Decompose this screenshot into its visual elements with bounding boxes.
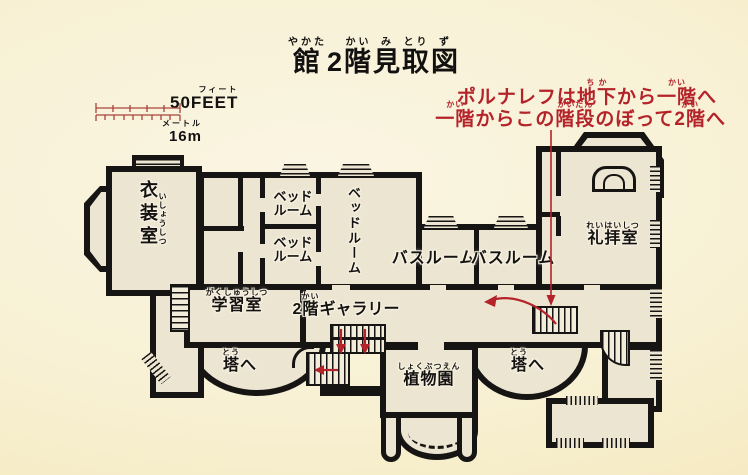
title-text: 館 [293, 48, 322, 77]
annotation-text: のぼって [595, 109, 674, 130]
window [650, 166, 660, 192]
wall-segment [320, 386, 386, 396]
room-label-tower-left: とう塔 へ [222, 348, 256, 375]
room-label-text: バスルーム [471, 250, 556, 268]
wall-segment [556, 150, 561, 196]
room-label-text: 2 [293, 301, 302, 319]
door-gap [498, 285, 514, 291]
room-label-garden: しょくぶつえん 植物園 [398, 362, 461, 389]
window [424, 216, 458, 228]
door-gap [430, 285, 446, 291]
room-label-text: へ [528, 357, 544, 375]
wall-segment [538, 212, 560, 217]
wall-segment [556, 216, 561, 236]
room-label-bedroom-small-top: ベッド ルーム [273, 190, 312, 218]
furigana: ち か [586, 78, 607, 87]
title-text: 2 [327, 48, 344, 77]
window [494, 216, 528, 228]
stair-left [170, 284, 190, 332]
window [338, 164, 374, 176]
wall-segment [260, 258, 265, 288]
title-text: 見 [373, 48, 402, 77]
wall-segment [316, 206, 321, 252]
window [650, 288, 662, 318]
door-gap [332, 285, 350, 291]
room-label-furigana: れいはいしつ [586, 221, 640, 230]
furigana: とう [510, 348, 528, 357]
title-text: 階 [344, 48, 373, 77]
window [280, 164, 310, 176]
wall-segment [260, 176, 265, 198]
scale-meters-text: 16m [169, 128, 202, 146]
room-label-text: 塔 [223, 357, 239, 375]
furigana: かい [668, 78, 686, 87]
door-gap [584, 285, 600, 291]
room-label-furigana: しょくぶつえん [398, 362, 461, 371]
scale-feet-text: 50FEET [170, 94, 238, 112]
wall-segment [264, 224, 320, 229]
room-label-text: へ [240, 357, 256, 375]
annotation-text: からこの [475, 109, 555, 130]
page-title: やかた館 2 かい階 み見 とり取 ず図 [0, 37, 748, 77]
wall-segment [238, 252, 243, 288]
wall-segment [316, 266, 321, 288]
room-label-text: ベッドルーム [346, 186, 361, 276]
room-label-bedroom-large: ベッドルーム [346, 186, 361, 276]
wall-segment [238, 178, 243, 226]
annotation-line-2: かい一階 からこの かいだん階段 のぼって かい2階 へ [435, 100, 726, 130]
furigana: かい [446, 100, 464, 109]
window [650, 220, 660, 248]
room-label-text: 衣装室 [138, 180, 158, 249]
annotation-text: へ [706, 109, 726, 130]
stair-rail [332, 337, 384, 340]
door-gap [418, 342, 444, 350]
room-label-text: 学習室 [211, 297, 262, 315]
stair-main-landing [532, 306, 578, 334]
chapel-window-seat [592, 166, 636, 192]
floor-plan-page: 衣装室 いしょうしつ ベッド ルーム ベッド ルーム ベッドルーム バスルーム … [0, 0, 748, 475]
room-label-bedroom-small-bottom: ベッド ルーム [273, 236, 312, 264]
room-label-text: ベッド [273, 190, 312, 204]
wall-segment [316, 176, 321, 194]
room-label-study: がくしゅうしつ 学習室 [206, 288, 269, 315]
room-label-text: 塔 [511, 357, 527, 375]
furigana: とう [222, 348, 240, 357]
title-text: 取 [402, 48, 431, 77]
annotation-text: 一階 [435, 109, 475, 130]
window [566, 396, 598, 405]
window [556, 438, 584, 448]
room-label-text: 植物園 [403, 371, 454, 389]
scale-meters-furigana: メートル [162, 119, 202, 128]
room-label-text: ルーム [274, 204, 313, 218]
room-label-bathroom-right: バスルーム [471, 250, 556, 268]
room-label-gallery: 2 かい階 ギャラリー [293, 292, 400, 319]
room-label-tower-right: とう塔 へ [510, 348, 544, 375]
room-label-text: ベッド [273, 236, 312, 250]
furigana: かい [681, 100, 699, 109]
annotation-text: 階段 [555, 109, 595, 130]
furigana: かいだん [557, 100, 593, 109]
scale-meters-label: メートル 16m [162, 119, 202, 146]
wall-segment [202, 226, 244, 231]
annotation-text: 2階 [674, 109, 706, 130]
room-label-text: 階 [302, 301, 318, 319]
room-label-chapel: れいはいしつ 礼拝室 [586, 221, 640, 248]
room-label-bathroom-left: バスルーム [392, 250, 477, 268]
room-label-text: バスルーム [392, 250, 477, 268]
scale-feet-label: フィート 50FEET [170, 85, 238, 112]
room-label-text: ギャラリー [319, 301, 399, 319]
title-text: 図 [431, 48, 460, 77]
room-label-furigana: がくしゅうしつ [206, 288, 269, 297]
window [602, 438, 630, 448]
room-label-wardrobe: 衣装室 いしょうしつ [138, 180, 167, 249]
window [650, 350, 662, 380]
room-label-furigana: いしょうしつ [158, 192, 167, 249]
furigana: かい [301, 292, 319, 301]
room-label-text: 礼拝室 [587, 230, 638, 248]
room-label-text: ルーム [274, 250, 313, 264]
